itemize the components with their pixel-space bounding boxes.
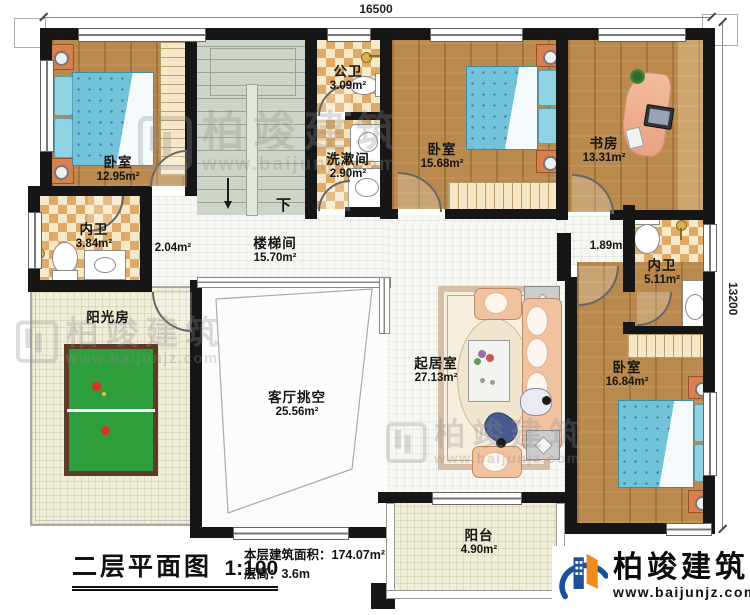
room-label-public-bath: 公卫 3.09m²	[315, 64, 381, 93]
room-label-ensuite-right: 内卫 5.11m²	[628, 258, 696, 287]
wall	[623, 326, 715, 334]
coffee-table	[468, 340, 510, 402]
room-label-balcony: 阳台 4.90m²	[425, 528, 533, 557]
faucet-icon	[361, 52, 372, 63]
wardrobe	[627, 334, 715, 358]
computer-monitor	[643, 104, 674, 130]
room-label-void: 客厅挑空 25.56m²	[242, 390, 352, 419]
plan-title: 二层平面图	[72, 553, 212, 581]
stair-arrow	[227, 178, 229, 202]
window	[430, 28, 523, 42]
window	[666, 523, 712, 536]
sink	[685, 294, 705, 320]
wall	[445, 209, 568, 219]
balcony-parapet	[386, 503, 395, 595]
bed	[72, 72, 154, 166]
pillow	[54, 118, 73, 158]
void-railing	[197, 277, 391, 288]
stairs-down-label: 下	[276, 194, 291, 215]
room-label-sunroom: 阳光房	[68, 310, 148, 326]
room-label-bedroom1: 卧室 12.95m²	[58, 155, 178, 184]
dimension-line-right	[722, 22, 723, 530]
wall	[623, 322, 635, 334]
wall	[565, 277, 577, 523]
room-label-bedroom3: 卧室 16.84m²	[582, 360, 672, 389]
washing-machine-door	[358, 132, 378, 152]
wall	[345, 207, 382, 217]
wall	[557, 233, 571, 281]
window	[703, 392, 717, 476]
person-head	[496, 438, 506, 448]
plan-notes: 本层建筑面积：174.07m² 层高：3.6m	[244, 546, 385, 585]
person-head	[542, 396, 551, 405]
area-note: 本层建筑面积：174.07m²	[244, 546, 385, 565]
room-label-study: 书房 13.31m²	[558, 136, 650, 165]
cushion	[526, 338, 548, 368]
window	[28, 212, 42, 269]
void-railing	[379, 277, 390, 334]
study-floor-accent	[678, 40, 703, 212]
window	[703, 224, 717, 272]
wall	[140, 188, 152, 290]
cushion	[482, 452, 508, 472]
flower	[474, 358, 481, 365]
flower	[486, 354, 494, 362]
window	[78, 28, 206, 42]
dimension-top-value: 16500	[348, 2, 404, 16]
dimension-right-value: 13200	[726, 282, 740, 315]
wardrobe	[448, 182, 560, 210]
wall	[556, 36, 568, 220]
table-dot	[490, 380, 495, 385]
room-label-washroom: 洗漱间 2.90m²	[312, 152, 384, 181]
stair-arrow-head	[224, 201, 232, 209]
stair-stringer	[246, 84, 258, 216]
paddle	[101, 426, 110, 435]
pillow	[538, 108, 558, 144]
sliding-door	[432, 492, 522, 505]
wall	[28, 280, 152, 292]
table-tennis-table	[64, 344, 158, 476]
side-table	[526, 430, 560, 460]
pillow	[54, 76, 73, 116]
dimension-line-top	[44, 17, 712, 18]
bed	[466, 66, 538, 150]
wall	[378, 492, 432, 503]
area-label-hall: 2.04m²	[142, 242, 204, 255]
window	[327, 28, 371, 42]
floor-height-note: 层高：3.6m	[244, 565, 385, 584]
sink	[94, 257, 116, 273]
window	[233, 527, 349, 540]
wall	[347, 527, 387, 538]
area-label-hall-right: 1.89m²	[578, 240, 638, 253]
window	[40, 60, 54, 152]
ball	[102, 392, 106, 396]
cushion	[526, 306, 548, 336]
wall	[703, 28, 715, 218]
cushion	[484, 292, 508, 314]
room-label-bedroom2: 卧室 15.68m²	[396, 142, 488, 171]
plant	[629, 68, 646, 85]
room-label-living: 起居室 27.13m²	[398, 356, 474, 385]
pillow	[538, 70, 558, 106]
paddle	[92, 382, 101, 391]
table-dot	[480, 378, 485, 383]
sink	[355, 178, 379, 197]
wall	[520, 492, 568, 503]
brand-site: www.baijunjz.com	[613, 584, 750, 600]
window	[598, 28, 686, 42]
brand-logo: 柏竣建筑 www.baijunjz.com	[552, 546, 750, 604]
balcony-parapet	[386, 590, 565, 599]
wall	[380, 36, 392, 219]
bed	[618, 400, 694, 488]
brand-logo-icon	[554, 548, 608, 602]
flower	[478, 350, 486, 358]
shower-stem	[680, 228, 682, 240]
room-label-stairwell: 楼梯间 15.70m²	[225, 236, 325, 265]
brand-name: 柏竣建筑	[613, 551, 750, 584]
room-label-ensuite-left: 内卫 3.84m²	[52, 222, 136, 251]
